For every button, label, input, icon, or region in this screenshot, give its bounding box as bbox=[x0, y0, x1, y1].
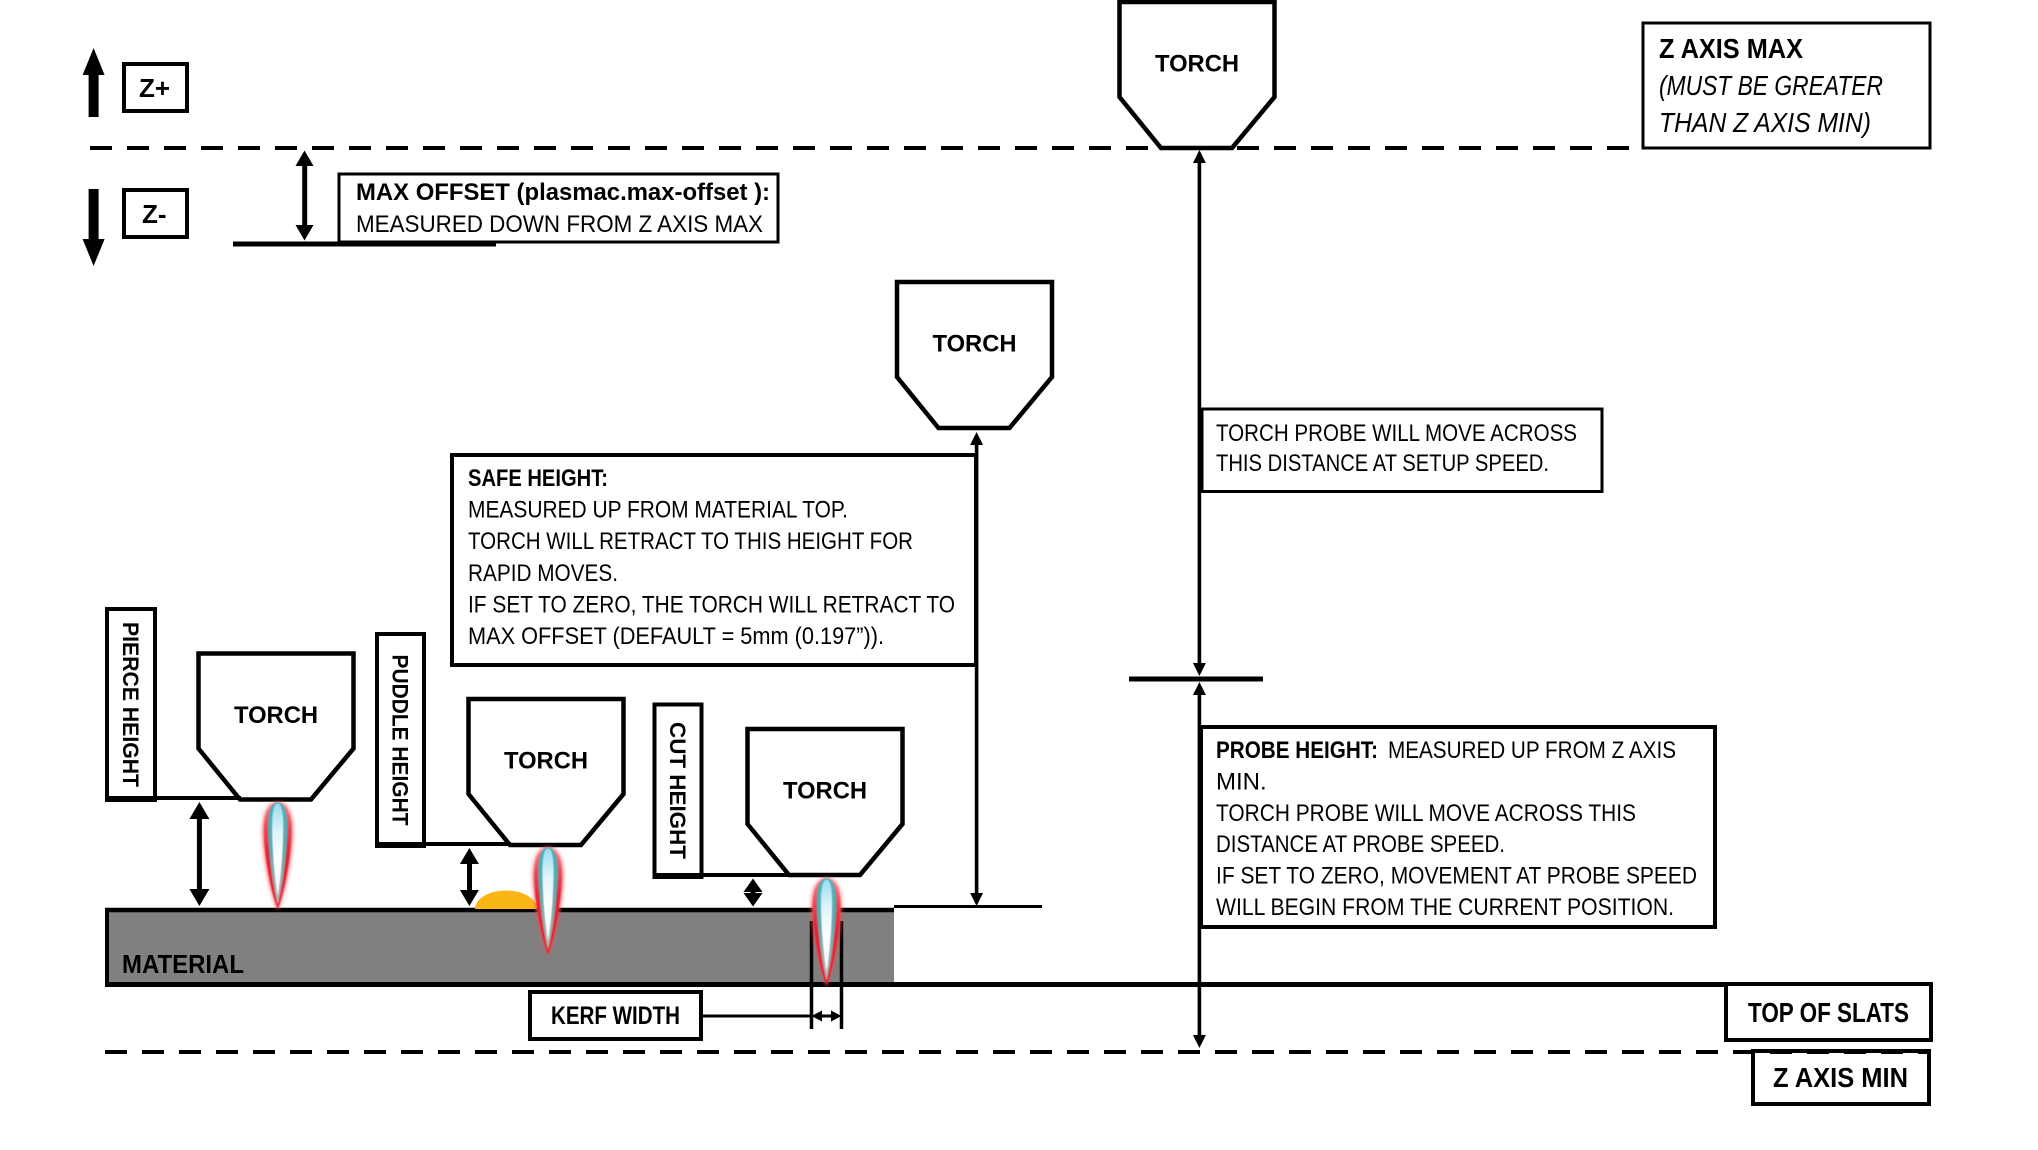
svg-text:MEASURED DOWN FROM Z AXIS MAX: MEASURED DOWN FROM Z AXIS MAX bbox=[356, 211, 763, 238]
svg-text:TORCH: TORCH bbox=[783, 777, 867, 804]
svg-text:PROBE HEIGHT:: PROBE HEIGHT: bbox=[1216, 737, 1378, 764]
svg-text:Z AXIS MIN: Z AXIS MIN bbox=[1773, 1062, 1908, 1093]
svg-text:TORCH: TORCH bbox=[1155, 50, 1239, 77]
svg-text:TORCH: TORCH bbox=[234, 702, 318, 729]
svg-text:THAN Z AXIS MIN): THAN Z AXIS MIN) bbox=[1659, 107, 1871, 138]
svg-text:MAX OFFSET (plasmac.max-offset: MAX OFFSET (plasmac.max-offset ): bbox=[356, 179, 770, 206]
svg-text:MEASURED UP FROM MATERIAL TOP.: MEASURED UP FROM MATERIAL TOP. bbox=[468, 497, 848, 524]
svg-text:IF SET TO ZERO, THE TORCH WILL: IF SET TO ZERO, THE TORCH WILL RETRACT T… bbox=[468, 591, 955, 618]
svg-text:TORCH PROBE WILL MOVE ACROSS T: TORCH PROBE WILL MOVE ACROSS THIS bbox=[1216, 800, 1636, 827]
svg-text:TORCH: TORCH bbox=[933, 330, 1017, 357]
svg-text:PUDDLE HEIGHT: PUDDLE HEIGHT bbox=[388, 655, 413, 827]
svg-text:MATERIAL: MATERIAL bbox=[122, 949, 244, 979]
svg-text:MEASURED UP FROM Z AXIS: MEASURED UP FROM Z AXIS bbox=[1388, 737, 1676, 764]
svg-text:TOP OF SLATS: TOP OF SLATS bbox=[1748, 997, 1909, 1028]
svg-text:Z+: Z+ bbox=[139, 73, 170, 103]
svg-text:THIS DISTANCE AT SETUP SPEED.: THIS DISTANCE AT SETUP SPEED. bbox=[1216, 450, 1549, 477]
svg-text:IF SET TO ZERO, MOVEMENT AT P: IF SET TO ZERO, MOVEMENT AT PROBE SPEED bbox=[1216, 863, 1697, 890]
svg-text:KERF WIDTH: KERF WIDTH bbox=[551, 1002, 680, 1030]
svg-text:(MUST BE GREATER: (MUST BE GREATER bbox=[1659, 70, 1883, 101]
svg-text:MIN.: MIN. bbox=[1216, 768, 1267, 795]
svg-text:Z AXIS MAX: Z AXIS MAX bbox=[1659, 33, 1803, 64]
svg-text:RAPID MOVES.: RAPID MOVES. bbox=[468, 560, 618, 587]
svg-text:SAFE HEIGHT:: SAFE HEIGHT: bbox=[468, 465, 608, 492]
svg-text:PIERCE HEIGHT: PIERCE HEIGHT bbox=[118, 622, 143, 788]
svg-text:TORCH: TORCH bbox=[504, 747, 588, 774]
svg-text:WILL BEGIN FROM THE CURRENT PO: WILL BEGIN FROM THE CURRENT POSITION. bbox=[1216, 894, 1674, 921]
svg-text:Z-: Z- bbox=[142, 199, 167, 229]
svg-text:DISTANCE AT PROBE SPEED.: DISTANCE AT PROBE SPEED. bbox=[1216, 831, 1505, 858]
svg-text:MAX OFFSET (DEFAULT = 5mm (0.1: MAX OFFSET (DEFAULT = 5mm (0.197”)). bbox=[468, 623, 884, 650]
svg-text:TORCH PROBE WILL MOVE ACROSS: TORCH PROBE WILL MOVE ACROSS bbox=[1216, 420, 1577, 447]
svg-text:CUT HEIGHT: CUT HEIGHT bbox=[665, 722, 690, 860]
svg-text:TORCH WILL RETRACT TO THIS HEI: TORCH WILL RETRACT TO THIS HEIGHT FOR bbox=[468, 528, 913, 555]
